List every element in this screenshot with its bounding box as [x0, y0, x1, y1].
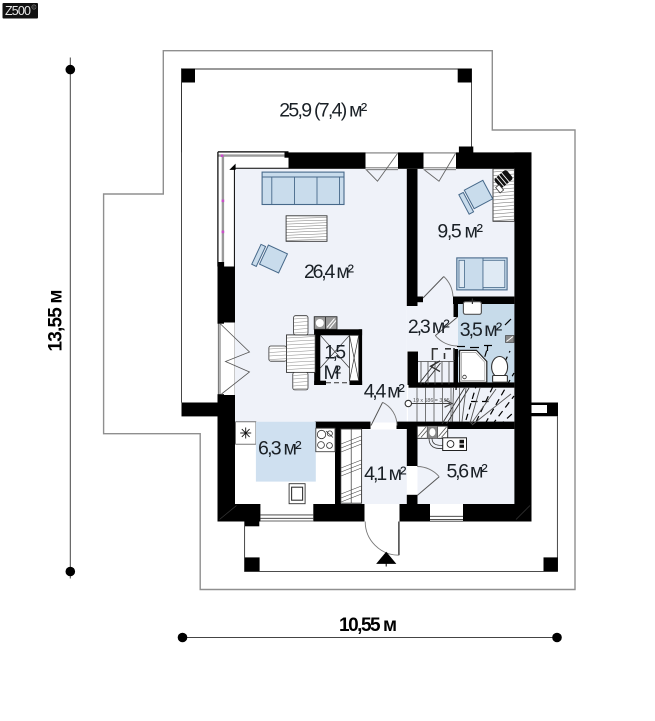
svg-text:25,9 (7,4) м²: 25,9 (7,4) м² [279, 100, 368, 122]
svg-text:М²: М² [323, 362, 341, 384]
svg-text:4,1 м²: 4,1 м² [364, 463, 407, 485]
svg-text:1,5: 1,5 [324, 342, 346, 364]
svg-text:2,3 м²: 2,3 м² [408, 316, 450, 338]
svg-text:4,4 м²: 4,4 м² [364, 380, 406, 402]
svg-text:10,55 м: 10,55 м [339, 615, 397, 636]
svg-text:5,6 м²: 5,6 м² [447, 460, 489, 482]
svg-text:3,5 м²: 3,5 м² [460, 319, 503, 341]
svg-text:6,3 м²: 6,3 м² [258, 437, 302, 459]
svg-text:26,4 м²: 26,4 м² [304, 261, 355, 283]
svg-text:Z500: Z500 [5, 4, 31, 18]
svg-text:13,55 м: 13,55 м [46, 290, 67, 352]
svg-text:9,5 м²: 9,5 м² [437, 220, 483, 242]
svg-text:©: © [32, 4, 37, 12]
svg-text:19 x 186 = 3,95: 19 x 186 = 3,95 [413, 398, 450, 404]
